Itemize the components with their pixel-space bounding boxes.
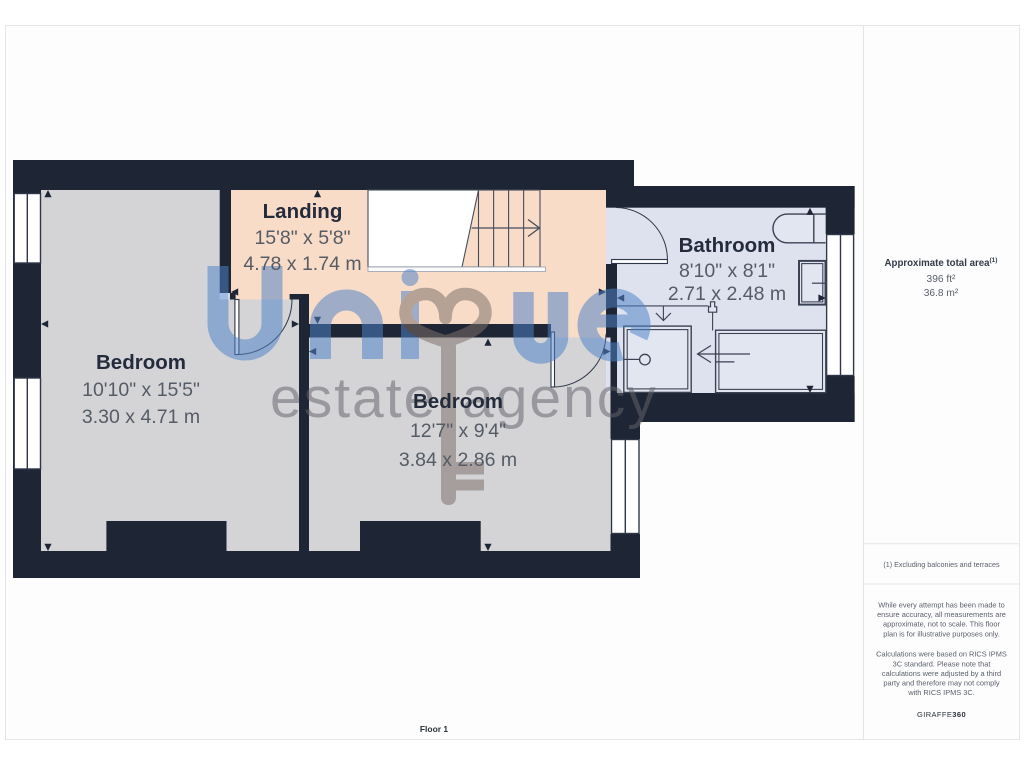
- svg-text:ensure accuracy, all measureme: ensure accuracy, all measurements are: [877, 610, 1006, 619]
- svg-text:Landing: Landing: [263, 200, 343, 223]
- svg-text:calculations were adjusted by: calculations were adjusted by a third: [882, 669, 1001, 678]
- svg-text:3.30 x 4.71 m: 3.30 x 4.71 m: [82, 406, 200, 428]
- svg-text:3C standard. Please note that: 3C standard. Please note that: [893, 659, 991, 668]
- svg-text:Bedroom: Bedroom: [96, 351, 186, 374]
- svg-text:8'10" x 8'1": 8'10" x 8'1": [679, 260, 775, 282]
- svg-text:Bedroom: Bedroom: [413, 390, 503, 413]
- svg-text:12'7" x 9'4": 12'7" x 9'4": [410, 420, 506, 442]
- svg-text:36.8 m²: 36.8 m²: [924, 288, 959, 299]
- svg-text:396 ft²: 396 ft²: [927, 274, 956, 285]
- svg-text:approximate, not to scale. Thi: approximate, not to scale. This floor: [883, 620, 1000, 629]
- svg-text:4.78 x 1.74 m: 4.78 x 1.74 m: [243, 253, 361, 275]
- svg-text:GIRAFFE360: GIRAFFE360: [917, 710, 966, 719]
- svg-text:While every attempt has been m: While every attempt has been made to: [878, 601, 1005, 610]
- svg-text:Approximate total area(1): Approximate total area(1): [885, 257, 998, 269]
- svg-text:10'10" x 15'5": 10'10" x 15'5": [82, 379, 200, 401]
- svg-text:(1) Excluding balconies and te: (1) Excluding balconies and terraces: [883, 560, 1000, 569]
- svg-text:3.84 x 2.86 m: 3.84 x 2.86 m: [399, 449, 517, 471]
- svg-text:Calculations were based on RIC: Calculations were based on RICS IPMS: [876, 650, 1007, 659]
- svg-text:Floor 1: Floor 1: [420, 724, 449, 734]
- svg-text:2.71 x 2.48 m: 2.71 x 2.48 m: [668, 283, 786, 305]
- svg-text:15'8" x 5'8": 15'8" x 5'8": [254, 227, 350, 249]
- svg-text:with RICS IPMS 3C.: with RICS IPMS 3C.: [907, 688, 975, 697]
- svg-text:Bathroom: Bathroom: [679, 234, 776, 257]
- svg-text:plan is for illustrative purpo: plan is for illustrative purposes only.: [883, 629, 1000, 638]
- svg-text:party and therefore may not co: party and therefore may not comply: [883, 679, 1000, 688]
